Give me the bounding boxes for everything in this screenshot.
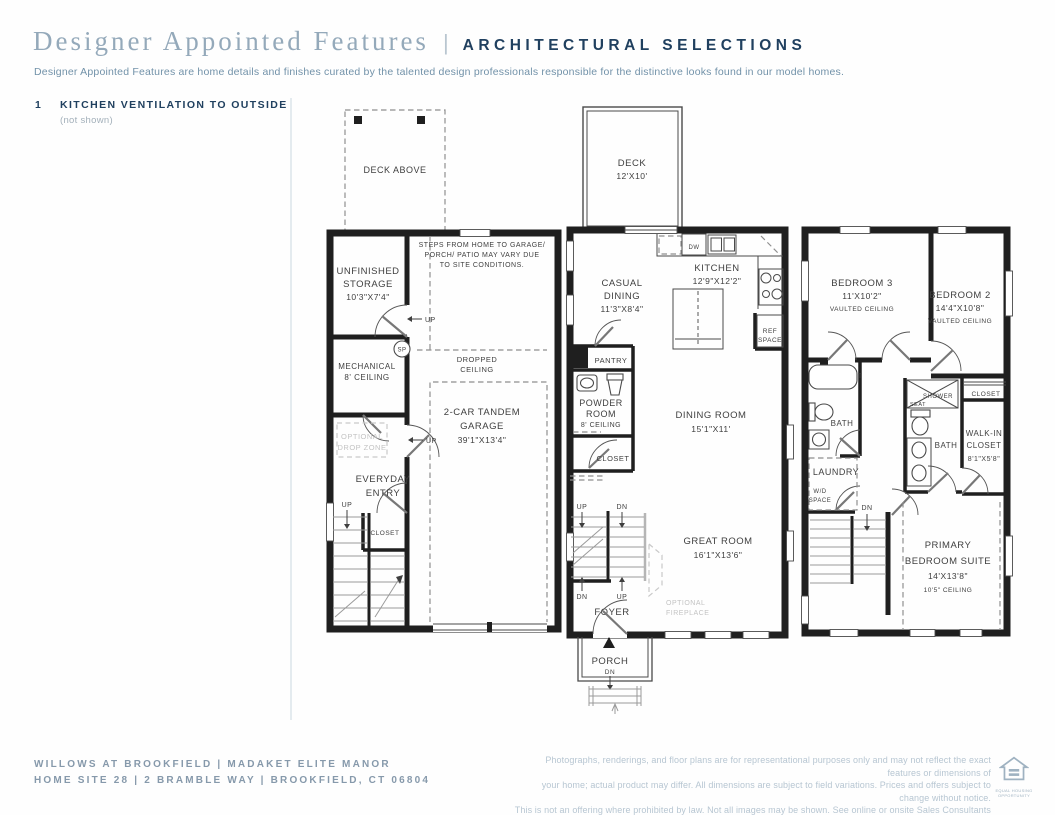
- svg-text:UNFINISHED: UNFINISHED: [336, 266, 399, 277]
- svg-text:PRIMARY: PRIMARY: [925, 540, 972, 551]
- svg-text:ENTRY: ENTRY: [366, 488, 401, 499]
- foyer: FOYER: [593, 600, 630, 638]
- hall-closet: CLOSET: [570, 440, 630, 480]
- svg-text:10'5" CEILING: 10'5" CEILING: [924, 587, 973, 594]
- svg-text:DINING: DINING: [604, 291, 640, 302]
- bath1: BATH: [809, 365, 857, 449]
- svg-text:12'9"X12'2": 12'9"X12'2": [693, 276, 742, 286]
- svg-text:GREAT ROOM: GREAT ROOM: [683, 536, 752, 547]
- floor-plan-upper-level: BEDROOM 3 11'X10'2" VAULTED CEILING CLOS…: [800, 226, 1015, 641]
- svg-text:PORCH: PORCH: [592, 656, 629, 667]
- floor-plan-lower-level: DECK ABOVE: [325, 105, 565, 640]
- pantry: PANTRY: [595, 320, 628, 365]
- room-labels: UNFINISHED STORAGE 10'3"X7'4" STEPS FROM…: [336, 242, 545, 499]
- bedroom2: BEDROOM 2 14'4"X10'8" VAULTED CEILING CL…: [928, 290, 1006, 398]
- community-line: WILLOWS AT BROOKFIELD | MADAKET ELITE MA…: [34, 757, 430, 773]
- svg-text:CASUAL: CASUAL: [601, 278, 642, 289]
- label-dishwasher: DW: [689, 245, 700, 251]
- svg-text:POWDER: POWDER: [579, 398, 623, 408]
- svg-text:15'1"X11': 15'1"X11': [691, 424, 730, 434]
- laundry: LAUNDRY W/D SPACE: [809, 458, 859, 510]
- vertical-divider: [290, 98, 292, 720]
- equal-housing-house-icon: [999, 756, 1029, 782]
- svg-text:8'1"X5'8": 8'1"X5'8": [968, 456, 1000, 463]
- brochure-page: Designer Appointed Features | ARCHITECTU…: [0, 0, 1055, 815]
- kitchen: DW REF SPACE KITCHEN 12'9"X12'2": [657, 234, 783, 349]
- svg-text:DROPPED: DROPPED: [457, 355, 498, 364]
- svg-text:OPTIONAL: OPTIONAL: [666, 600, 705, 607]
- svg-text:REF: REF: [763, 328, 778, 335]
- dining-room: DINING ROOM 15'1"X11': [676, 410, 747, 434]
- svg-text:DINING ROOM: DINING ROOM: [676, 410, 747, 421]
- svg-text:BATH: BATH: [935, 441, 958, 450]
- svg-text:DN: DN: [576, 594, 587, 601]
- svg-text:UP: UP: [425, 317, 436, 324]
- svg-text:CEILING: CEILING: [460, 365, 494, 374]
- svg-text:TO SITE CONDITIONS.: TO SITE CONDITIONS.: [440, 262, 524, 269]
- svg-text:W/D: W/D: [813, 489, 826, 495]
- label-closet: CLOSET: [370, 530, 399, 537]
- svg-text:39'1"X13'4": 39'1"X13'4": [458, 435, 507, 445]
- svg-text:11'X10'2": 11'X10'2": [842, 291, 881, 301]
- svg-text:UP: UP: [577, 504, 588, 511]
- page-title: Designer Appointed Features: [33, 26, 429, 57]
- svg-text:CLOSET: CLOSET: [966, 441, 1001, 450]
- svg-text:8' CEILING: 8' CEILING: [581, 422, 621, 429]
- svg-text:DN: DN: [605, 669, 615, 676]
- svg-text:DECK: DECK: [618, 158, 647, 169]
- walls: [570, 230, 785, 635]
- svg-text:OPTIONAL: OPTIONAL: [341, 432, 383, 441]
- svg-text:LAUNDRY: LAUNDRY: [813, 467, 859, 477]
- svg-text:BEDROOM 2: BEDROOM 2: [929, 290, 991, 301]
- svg-text:EVERYDAY: EVERYDAY: [356, 474, 411, 485]
- svg-text:14'4"X10'8": 14'4"X10'8": [936, 303, 985, 313]
- svg-text:SPACE: SPACE: [809, 498, 831, 504]
- svg-text:BATH: BATH: [831, 419, 854, 428]
- svg-text:DN: DN: [616, 504, 627, 511]
- primary-suite: PRIMARY BEDROOM SUITE 14'X13'8" 10'5" CE…: [903, 502, 1000, 630]
- svg-text:ROOM: ROOM: [586, 409, 616, 419]
- svg-text:FOYER: FOYER: [594, 607, 629, 618]
- equal-housing-logo: EQUAL HOUSING OPPORTUNITY: [995, 756, 1033, 798]
- svg-text:11'3"X8'4": 11'3"X8'4": [601, 304, 644, 314]
- svg-text:10'3"X7'4": 10'3"X7'4": [346, 292, 390, 302]
- svg-text:8' CEILING: 8' CEILING: [344, 373, 389, 382]
- garage-door: [433, 622, 547, 632]
- feature-subnote: (not shown): [60, 115, 288, 126]
- svg-text:VAULTED CEILING: VAULTED CEILING: [928, 318, 992, 325]
- svg-text:DN: DN: [861, 505, 872, 512]
- svg-text:WALK-IN: WALK-IN: [966, 429, 1003, 438]
- floor-plan-main-level: DECK 12'X10': [565, 103, 795, 715]
- stairs: UP DN DN UP: [571, 504, 645, 601]
- feature-note: 1 KITCHEN VENTILATION TO OUTSIDE (not sh…: [35, 99, 288, 126]
- feature-title: KITCHEN VENTILATION TO OUTSIDE: [60, 99, 288, 111]
- svg-text:UP: UP: [342, 502, 353, 509]
- svg-text:CLOSET: CLOSET: [971, 391, 1000, 398]
- shower: SHOWER SEAT: [907, 380, 958, 408]
- powder-room: POWDER ROOM 8' CEILING: [573, 374, 623, 432]
- svg-text:12'X10': 12'X10': [616, 171, 647, 181]
- header-description: Designer Appointed Features are home det…: [34, 66, 844, 78]
- deck-above: DECK ABOVE: [345, 110, 445, 234]
- svg-text:BEDROOM 3: BEDROOM 3: [831, 278, 893, 289]
- sp-symbol: SP: [394, 341, 410, 357]
- footer-community: WILLOWS AT BROOKFIELD | MADAKET ELITE MA…: [34, 757, 430, 789]
- svg-text:DROP ZONE: DROP ZONE: [338, 443, 387, 452]
- svg-text:SHOWER: SHOWER: [923, 394, 953, 400]
- svg-text:CLOSET: CLOSET: [596, 454, 629, 463]
- great-room: GREAT ROOM 16'1"X13'6": [683, 536, 752, 560]
- bath2: BATH: [907, 410, 957, 486]
- svg-text:2-CAR TANDEM: 2-CAR TANDEM: [444, 407, 520, 418]
- svg-text:STORAGE: STORAGE: [343, 279, 393, 290]
- label-sp: SP: [397, 348, 406, 354]
- footer-disclaimer: Photographs, renderings, and floor plans…: [513, 754, 991, 815]
- deck: DECK 12'X10': [583, 107, 682, 230]
- stairs: DN: [810, 505, 886, 584]
- svg-text:14'X13'8": 14'X13'8": [928, 571, 968, 581]
- casual-dining: CASUAL DINING 11'3"X8'4": [601, 278, 644, 314]
- equal-housing-label: EQUAL HOUSING OPPORTUNITY: [995, 788, 1033, 798]
- svg-text:PANTRY: PANTRY: [595, 356, 628, 365]
- svg-text:GARAGE: GARAGE: [460, 421, 504, 432]
- svg-text:16'1"X13'6": 16'1"X13'6": [694, 550, 743, 560]
- label-deck-above: DECK ABOVE: [363, 165, 426, 175]
- address-line: HOME SITE 28 | 2 BRAMBLE WAY | BROOKFIEL…: [34, 773, 430, 789]
- svg-text:VAULTED CEILING: VAULTED CEILING: [830, 306, 894, 313]
- svg-text:BEDROOM SUITE: BEDROOM SUITE: [905, 556, 991, 567]
- page-header: Designer Appointed Features | ARCHITECTU…: [33, 26, 806, 57]
- section-title: ARCHITECTURAL SELECTIONS: [463, 37, 807, 55]
- svg-text:SPACE: SPACE: [758, 337, 782, 344]
- svg-text:KITCHEN: KITCHEN: [694, 263, 739, 274]
- svg-text:STEPS FROM HOME TO GARAGE/: STEPS FROM HOME TO GARAGE/: [419, 242, 546, 249]
- optional-drop-zone: OPTIONAL DROP ZONE: [337, 423, 387, 457]
- svg-text:MECHANICAL: MECHANICAL: [338, 362, 396, 371]
- porch: PORCH DN: [578, 637, 652, 714]
- svg-text:SEAT: SEAT: [910, 402, 926, 408]
- svg-text:FIREPLACE: FIREPLACE: [666, 610, 709, 617]
- svg-text:PORCH/ PATIO MAY VARY DUE: PORCH/ PATIO MAY VARY DUE: [424, 252, 539, 259]
- svg-text:UP: UP: [426, 438, 437, 445]
- title-divider: |: [443, 30, 449, 56]
- walk-in-closet: WALK-IN CLOSET 8'1"X5'8": [966, 429, 1003, 463]
- feature-number: 1: [35, 99, 60, 126]
